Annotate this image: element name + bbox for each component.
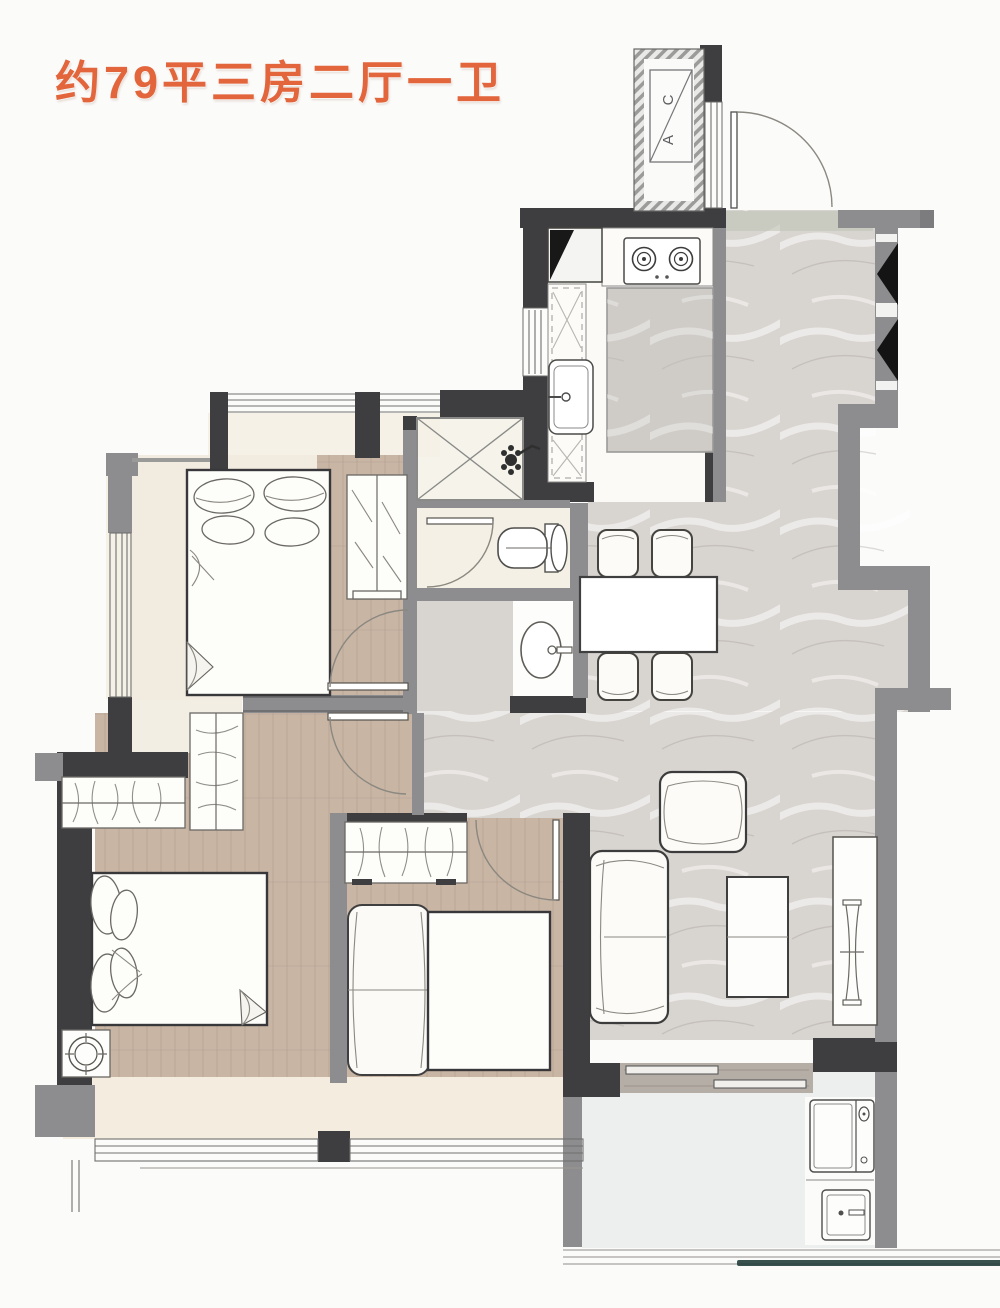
- page-title: 约79平三房二厅一卫: [55, 46, 505, 111]
- bay-window-top: [228, 394, 440, 412]
- nightstand-lamp-icon: [62, 1030, 110, 1077]
- sofa-icon: [590, 851, 668, 1023]
- master-bed-icon: [89, 873, 267, 1025]
- balcony-sliding-door: [620, 1063, 813, 1093]
- dining-chair-icon: [652, 653, 692, 700]
- tv-console-icon: [833, 837, 877, 1025]
- section-label-a: A: [660, 135, 677, 145]
- floor-bay-bottom: [63, 1077, 583, 1139]
- section-marker: C A: [650, 70, 692, 162]
- toilet-icon: [498, 524, 567, 572]
- section-label-c: C: [660, 94, 677, 105]
- kitchen: [548, 228, 713, 482]
- dining-chair-icon: [598, 530, 638, 577]
- floor-plan: C A: [0, 0, 1000, 1308]
- kitchen-window: [523, 308, 548, 376]
- bedroom2-wardrobe-icon: [345, 822, 467, 885]
- washing-machine-icon: [810, 1100, 874, 1172]
- dining-table-icon: [580, 577, 717, 652]
- stove-icon: [624, 238, 700, 284]
- coffee-table-icon: [727, 877, 788, 997]
- bed-icon: [187, 470, 330, 695]
- elevator-shaft: C A: [634, 49, 704, 211]
- armchair-icon: [660, 772, 746, 852]
- kitchen-sink-icon: [548, 360, 593, 434]
- wardrobe-icon: [347, 475, 407, 599]
- laundry-sink-icon: [822, 1190, 870, 1240]
- balcony-railing: [563, 1247, 1000, 1266]
- entry-door: [731, 112, 832, 208]
- dining-chair-icon: [598, 653, 638, 700]
- fridge-icon: [548, 228, 602, 282]
- dining-chair-icon: [652, 530, 692, 577]
- bedroom2-bed-icon: [348, 905, 550, 1075]
